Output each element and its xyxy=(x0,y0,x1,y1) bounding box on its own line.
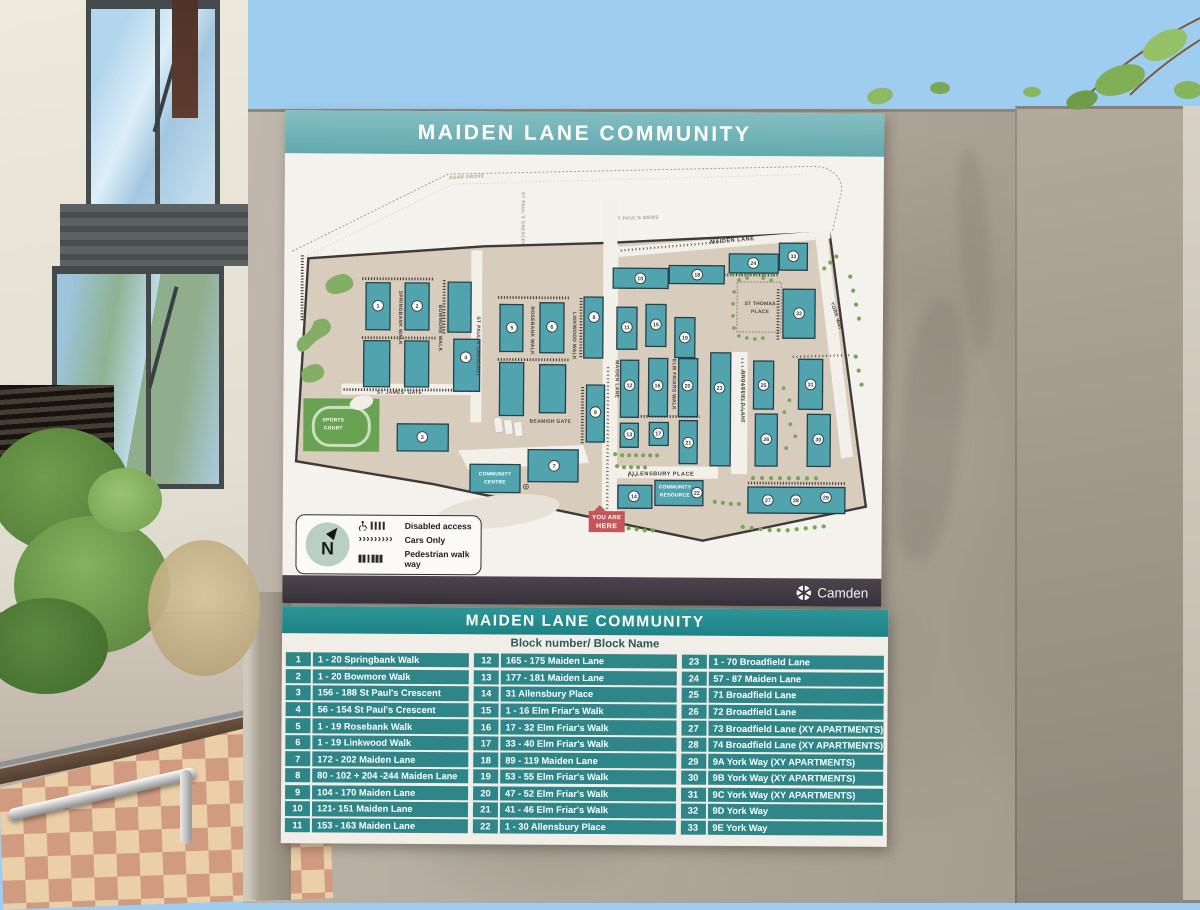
table-row: 23 1 - 70 Broadfield Lane xyxy=(681,655,884,671)
block-number-cell: 32 xyxy=(680,804,705,819)
block-name-cell: 1 - 20 Bowmore Walk xyxy=(313,669,469,684)
block-name-cell: 73 Broadfield Lane (XY APARTMENTS) xyxy=(708,721,884,736)
block-name-cell: 153 - 163 Maiden Lane xyxy=(312,818,468,833)
table-row: 16 17 - 32 Elm Friar's Walk xyxy=(473,720,676,736)
block-number-cell: 33 xyxy=(680,820,705,835)
block-number-cell: 27 xyxy=(681,721,706,736)
road-label-rosebank-walk: ROSEBANK WALK xyxy=(529,306,535,355)
table-column-3: 23 1 - 70 Broadfield Lane 24 57 - 87 Mai… xyxy=(680,655,884,836)
block-number-cell: 9 xyxy=(285,785,310,800)
block-number-cell: 16 xyxy=(473,720,498,735)
block-number-cell: 25 xyxy=(681,688,706,703)
block-name-cell: 1 - 19 Linkwood Walk xyxy=(312,735,468,750)
table-row: 33 9E York Way xyxy=(680,820,883,836)
svg-text:19: 19 xyxy=(682,336,688,342)
table-row: 4 56 - 154 St Paul's Crescent xyxy=(286,702,469,718)
road-label-broadfield-lane: BROADFIELD LANE xyxy=(739,371,745,424)
svg-text:HERE: HERE xyxy=(596,523,617,530)
svg-text:31: 31 xyxy=(808,382,814,388)
table-row: 26 72 Broadfield Lane xyxy=(681,704,884,720)
table-row: 1 1 - 20 Springbank Walk xyxy=(286,652,469,668)
block-number-cell: 19 xyxy=(473,769,498,784)
block-name-cell: 72 Broadfield Lane xyxy=(708,704,884,719)
block-table: 1 1 - 20 Springbank Walk 2 1 - 20 Bowmor… xyxy=(281,652,888,836)
table-row: 14 31 Allensbury Place xyxy=(474,686,677,702)
block-name-cell: 57 - 87 Maiden Lane xyxy=(708,671,884,686)
block-name-cell: 177 - 181 Maiden Lane xyxy=(501,670,677,685)
table-row: 25 71 Broadfield Lane xyxy=(681,688,884,704)
svg-text:11: 11 xyxy=(624,325,630,331)
block-number-cell: 28 xyxy=(681,737,706,752)
block-number-cell: 5 xyxy=(285,718,310,733)
table-row: 32 9D York Way xyxy=(680,804,883,820)
block-number-cell: 3 xyxy=(286,685,311,700)
table-row: 9 104 - 170 Maiden Lane xyxy=(285,785,468,801)
disabled-access-icon xyxy=(359,521,399,531)
block-name-cell: 1 - 70 Broadfield Lane xyxy=(708,655,884,670)
table-row: 20 47 - 52 Elm Friar's Walk xyxy=(473,786,676,802)
svg-text:23: 23 xyxy=(717,386,723,392)
block-number-cell: 31 xyxy=(681,787,706,802)
block-number-cell: 4 xyxy=(286,702,311,717)
legend-row-pedestrian: Pedestrian walk way xyxy=(358,549,471,570)
block-name-cell: 104 - 170 Maiden Lane xyxy=(312,785,468,800)
block-name-cell: 165 - 175 Maiden Lane xyxy=(501,653,677,668)
block-name-cell: 121- 151 Maiden Lane xyxy=(312,802,468,817)
community-map-sign: MAIDEN LANE COMMUNITY AGAR GROVE ST PAUL… xyxy=(281,110,895,847)
block-number-cell: 24 xyxy=(681,671,706,686)
block-name-cell: 9E York Way xyxy=(707,821,883,836)
pedestrian-walkway-icon xyxy=(358,555,398,563)
label-st-thomas-2: PLACE xyxy=(751,309,769,315)
block-number-cell: 1 xyxy=(286,652,311,667)
table-row: 27 73 Broadfield Lane (XY APARTMENTS) xyxy=(681,721,884,737)
svg-text:10: 10 xyxy=(637,276,643,282)
block-number-cell: 6 xyxy=(285,735,310,750)
table-row: 11 153 - 163 Maiden Lane xyxy=(285,818,468,834)
block-number-cell: 2 xyxy=(286,669,311,684)
label-community-resource-1: COMMUNITY xyxy=(659,484,692,490)
block-name-cell: 9B York Way (XY APARTMENTS) xyxy=(708,771,884,786)
map-panel: MAIDEN LANE COMMUNITY AGAR GROVE ST PAUL… xyxy=(282,110,884,607)
block-number-cell: 21 xyxy=(473,803,498,818)
svg-text:28: 28 xyxy=(793,498,799,504)
table-row: 19 53 - 55 Elm Friar's Walk xyxy=(473,769,676,785)
bush xyxy=(88,468,162,532)
svg-text:22: 22 xyxy=(694,491,700,497)
table-row: 21 41 - 46 Elm Friar's Walk xyxy=(473,803,676,819)
table-row: 15 1 - 16 Elm Friar's Walk xyxy=(474,703,677,719)
concrete-wall-right xyxy=(1015,106,1200,903)
svg-text:8: 8 xyxy=(592,315,595,321)
table-row: 17 33 - 40 Elm Friar's Walk xyxy=(473,736,676,752)
legend-row-disabled-access: Disabled access xyxy=(359,521,472,532)
block-name-cell: 41 - 46 Elm Friar's Walk xyxy=(500,803,676,818)
block-name-cell: 172 - 202 Maiden Lane xyxy=(312,752,468,767)
svg-text:26: 26 xyxy=(763,437,769,443)
road-label-st-james-gate: ST JAMES' GATE xyxy=(377,390,423,396)
block-number-cell: 13 xyxy=(474,670,499,685)
table-row: 28 74 Broadfield Lane (XY APARTMENTS) xyxy=(681,737,884,753)
label-community-resource-2: RESOURCE xyxy=(660,492,690,498)
block-number-cell: 15 xyxy=(474,703,499,718)
svg-text:29: 29 xyxy=(823,495,829,501)
label-sports-court-1: SPORTS xyxy=(322,417,344,423)
svg-text:››››››››››››››››››››››››››››››: ›››››››››››››››››››››››››››››››››››››››› xyxy=(605,365,612,513)
table-title: MAIDEN LANE COMMUNITY xyxy=(282,606,888,637)
svg-text:5: 5 xyxy=(510,326,513,332)
block-number-cell: 23 xyxy=(681,655,706,670)
block-number-cell: 17 xyxy=(473,736,498,751)
disabled-access-dot xyxy=(525,486,527,488)
svg-text:13: 13 xyxy=(626,432,632,438)
camden-logo-icon xyxy=(795,584,812,601)
svg-text:30: 30 xyxy=(815,437,821,443)
map-legend: N Disabled access ››››››››› Cars Only xyxy=(295,514,481,575)
block-name-cell: 156 - 188 St Paul's Crescent xyxy=(313,685,469,700)
table-row: 31 9C York Way (XY APARTMENTS) xyxy=(681,787,884,803)
block-number-cell: 11 xyxy=(285,818,310,833)
block-name-cell: 1 - 20 Springbank Walk xyxy=(313,652,469,667)
block-name-cell: 31 Allensbury Place xyxy=(501,687,677,702)
block-name-cell: 33 - 40 Elm Friar's Walk xyxy=(500,736,676,751)
block-name-cell: 74 Broadfield Lane (XY APARTMENTS) xyxy=(708,738,884,753)
camden-brand-text: Camden xyxy=(817,585,868,600)
table-column-2: 12 165 - 175 Maiden Lane 13 177 - 181 Ma… xyxy=(473,653,677,834)
building-cladding-strip xyxy=(172,0,198,118)
table-row: 12 165 - 175 Maiden Lane xyxy=(474,653,677,669)
block-name-cell: 9D York Way xyxy=(707,804,883,819)
cars-only-icon: ››››››››› xyxy=(359,536,399,544)
block-number-cell: 30 xyxy=(681,771,706,786)
svg-text:3: 3 xyxy=(421,435,424,441)
compass-letter: N xyxy=(321,538,334,559)
table-row: 18 89 - 119 Maiden Lane xyxy=(473,753,676,769)
svg-text:12: 12 xyxy=(627,383,633,389)
road-label-st-pauls-crescent-top: ST PAUL'S CRESCENT xyxy=(520,192,525,249)
block-number-cell: 7 xyxy=(285,752,310,767)
table-row: 10 121- 151 Maiden Lane xyxy=(285,801,468,817)
svg-text:32: 32 xyxy=(796,311,802,317)
block-name-cell: 1 - 19 Rosebank Walk xyxy=(312,719,468,734)
svg-text:YOU ARE: YOU ARE xyxy=(592,515,621,521)
block-number-cell: 8 xyxy=(285,768,310,783)
svg-text:21: 21 xyxy=(685,441,691,447)
table-row: 30 9B York Way (XY APARTMENTS) xyxy=(681,771,884,787)
block-name-cell: 56 - 154 St Paul's Crescent xyxy=(313,702,469,717)
legend-label: Pedestrian walk way xyxy=(404,549,471,569)
block-name-cell: 89 - 119 Maiden Lane xyxy=(500,753,676,768)
label-sports-court-2: COURT xyxy=(324,425,343,431)
block-number-cell: 14 xyxy=(474,686,499,701)
svg-text:4: 4 xyxy=(464,355,467,361)
svg-text:27: 27 xyxy=(765,498,771,504)
block-name-cell: 1 - 16 Elm Friar's Walk xyxy=(501,703,677,718)
table-row: 7 172 - 202 Maiden Lane xyxy=(285,752,468,768)
legend-label: Disabled access xyxy=(405,521,472,531)
road-label-agar-grove: AGAR GROVE xyxy=(449,173,485,180)
block-name-cell: 17 - 32 Elm Friar's Walk xyxy=(500,720,676,735)
block-number-cell: 20 xyxy=(473,786,498,801)
svg-text:15: 15 xyxy=(653,322,659,328)
legend-row-cars-only: ››››››››› Cars Only xyxy=(359,535,472,546)
road-label-springbank-walk: SPRINGBANK WALK xyxy=(397,291,403,345)
block-name-cell: 71 Broadfield Lane xyxy=(708,688,884,703)
svg-text:24: 24 xyxy=(750,261,756,267)
svg-text:20: 20 xyxy=(685,384,691,390)
svg-text:2: 2 xyxy=(416,304,419,310)
cars-route-maiden-vertical: ›››››››››››››››››››››››››››››››››››››››› xyxy=(605,365,612,513)
block-table-panel: MAIDEN LANE COMMUNITY Block number/ Bloc… xyxy=(281,606,888,847)
svg-text:9: 9 xyxy=(594,410,597,416)
road-label-maiden-lane-vertical: MAIDEN LANE xyxy=(613,360,619,398)
road-label-st-pauls-mews: ST PAUL'S MEWS xyxy=(614,215,659,221)
svg-text:6: 6 xyxy=(550,325,553,331)
svg-text:14: 14 xyxy=(631,494,637,500)
table-row: 8 80 - 102 + 204 -244 Maiden Lane xyxy=(285,768,468,784)
block-name-cell: 9C York Way (XY APARTMENTS) xyxy=(708,787,884,802)
label-st-thomas-1: ST THOMAS xyxy=(744,301,776,307)
table-row: 6 1 - 19 Linkwood Walk xyxy=(285,735,468,751)
block-name-cell: 53 - 55 Elm Friar's Walk xyxy=(500,770,676,785)
block-number-cell: 10 xyxy=(285,801,310,816)
block-number-cell: 12 xyxy=(474,653,499,668)
svg-text:17: 17 xyxy=(655,431,661,437)
building-dark-band xyxy=(60,204,248,266)
svg-text:33: 33 xyxy=(790,254,796,260)
label-community-centre-2: CENTRE xyxy=(484,479,506,485)
block-name-cell: 1 - 30 Allensbury Place xyxy=(500,819,676,834)
svg-text:1: 1 xyxy=(377,304,380,310)
road-maiden-lane-approach xyxy=(603,195,617,247)
sign-footer-bar: Camden xyxy=(282,575,881,607)
label-community-centre-1: COMMUNITY xyxy=(479,471,512,477)
svg-text:7: 7 xyxy=(553,464,556,470)
table-row: 29 9A York Way (XY APARTMENTS) xyxy=(681,754,884,770)
block-name-cell: 47 - 52 Elm Friar's Walk xyxy=(500,786,676,801)
table-row: 13 177 - 181 Maiden Lane xyxy=(474,670,677,686)
table-row: 22 1 - 30 Allensbury Place xyxy=(473,819,676,835)
handrail-post xyxy=(180,770,192,844)
table-row: 2 1 - 20 Bowmore Walk xyxy=(286,669,469,685)
road-label-beamish-gate: BEAMISH GATE xyxy=(530,419,572,425)
block-number-cell: 18 xyxy=(473,753,498,768)
svg-text:25: 25 xyxy=(761,383,767,389)
wall-sunlit-edge xyxy=(1183,106,1200,900)
table-column-1: 1 1 - 20 Springbank Walk 2 1 - 20 Bowmor… xyxy=(285,652,469,833)
road-label-elm-friars-walk: ELM FRIARS WALK xyxy=(670,359,676,410)
table-row: 5 1 - 19 Rosebank Walk xyxy=(285,718,468,734)
road-label-st-pauls-crescent: ST PAUL'S CRESCENT xyxy=(475,316,481,376)
block-name-cell: 80 - 102 + 204 -244 Maiden Lane xyxy=(312,768,468,783)
road-label-bowmore-walk: BOWMORE WALK xyxy=(437,305,443,352)
svg-text:16: 16 xyxy=(655,383,661,389)
dry-grass xyxy=(148,540,260,676)
building-window-upper xyxy=(86,0,220,220)
block-name-cell: 9A York Way (XY APARTMENTS) xyxy=(708,754,884,769)
table-row: 3 156 - 188 St Paul's Crescent xyxy=(286,685,469,701)
block-number-cell: 22 xyxy=(473,819,498,834)
road-label-allensbury-place: ALLENSBURY PLACE xyxy=(628,471,694,477)
table-row: 24 57 - 87 Maiden Lane xyxy=(681,671,884,687)
road-label-linkwood-walk: LINKWOOD WALK xyxy=(571,312,577,360)
block-number-cell: 29 xyxy=(681,754,706,769)
svg-text:18: 18 xyxy=(694,273,700,279)
legend-label: Cars Only xyxy=(405,535,446,545)
sign-title: MAIDEN LANE COMMUNITY xyxy=(285,110,884,157)
block-number-cell: 26 xyxy=(681,704,706,719)
compass-icon: N xyxy=(305,522,349,566)
